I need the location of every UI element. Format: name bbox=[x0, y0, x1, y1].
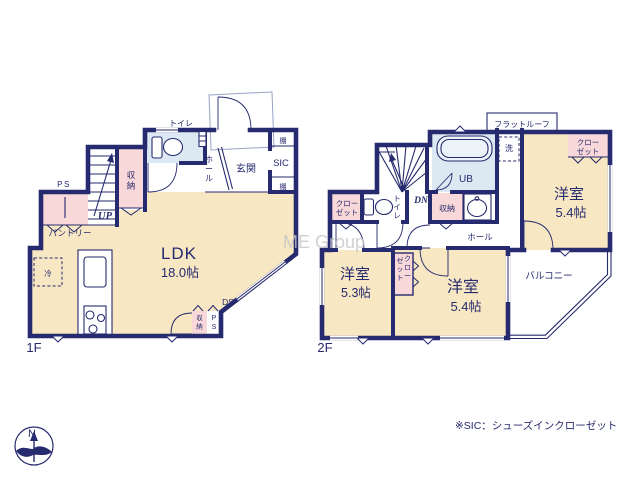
west-left-name-label: 洋室 bbox=[340, 266, 370, 283]
shelf-bottom-label: 棚 bbox=[280, 182, 287, 191]
door-arc-toilet-2f bbox=[377, 222, 403, 248]
door-arc-stairs-2f bbox=[407, 225, 430, 248]
up-label: UP bbox=[98, 211, 113, 222]
closet-tr-label-1: クロー bbox=[577, 138, 600, 147]
flat-roof-label: フラットルーフ bbox=[494, 120, 550, 129]
washer-label: 洗 bbox=[505, 143, 513, 153]
stairs-2f-fan bbox=[377, 145, 427, 192]
vent-mark bbox=[357, 338, 369, 344]
ldk-name-label: LDK bbox=[161, 244, 197, 263]
kitchen-stove-icon bbox=[84, 306, 106, 334]
sic-label: SIC bbox=[273, 158, 289, 169]
hall-label-2f: ホール bbox=[467, 232, 493, 242]
floor-plan-1f: トイレ ホール 玄関 SIC 棚 棚 収納 UP PS パントリー 冷 LDK … bbox=[26, 92, 296, 355]
ldk-size-label: 18.0帖 bbox=[161, 265, 199, 280]
hall-label-1f: ホール bbox=[205, 155, 213, 183]
stairs-1f-arrow bbox=[94, 160, 111, 216]
entrance-label: 玄関 bbox=[236, 162, 256, 175]
west-tr-name-label: 洋室 bbox=[554, 186, 584, 203]
toilet-label-2f: トイレ bbox=[393, 194, 401, 220]
vent-mark bbox=[166, 336, 178, 342]
vent-mark bbox=[52, 336, 64, 342]
vent-mark bbox=[454, 126, 466, 132]
stairs-1f-arrowhead bbox=[107, 153, 114, 163]
compass: N bbox=[15, 427, 53, 465]
west-center-name-label: 洋室 bbox=[447, 278, 479, 296]
balcony-label: バルコニー bbox=[525, 271, 572, 282]
toilet-tank-icon-1f bbox=[152, 137, 162, 158]
ps-top-label: PS bbox=[57, 180, 71, 189]
dn-label: DN bbox=[413, 196, 429, 206]
vent-mark bbox=[422, 338, 434, 344]
kitchen-sink-icon bbox=[84, 257, 106, 287]
ds-label: DS bbox=[222, 297, 234, 307]
storage-2f-label: 収納 bbox=[439, 203, 455, 213]
pantry-label: パントリー bbox=[49, 228, 92, 238]
west-center-size-label: 5.4帖 bbox=[450, 299, 481, 314]
floorplan-canvas: トイレ ホール 玄関 SIC 棚 棚 収納 UP PS パントリー 冷 LDK … bbox=[0, 0, 640, 480]
storage-mid-label: 収納 bbox=[127, 170, 136, 191]
closet-center-label-1: クロー bbox=[404, 255, 411, 280]
door-arc-hall-ldk bbox=[148, 163, 177, 192]
entrance-porch-outline bbox=[209, 92, 274, 150]
closet-tr-label-2: ゼット bbox=[577, 146, 600, 156]
compass-north-label: N bbox=[28, 428, 36, 440]
sic-footnote: ※SIC：シューズインクローゼット bbox=[455, 419, 617, 432]
toilet-bowl-icon-2f bbox=[376, 200, 393, 215]
west-tr-size-label: 5.4帖 bbox=[555, 205, 586, 220]
floor1-label: 1F bbox=[26, 340, 41, 355]
toilet-label-1f: トイレ bbox=[169, 119, 193, 128]
closet-left-label-1: クロー bbox=[336, 199, 359, 208]
west-left-size-label: 5.3帖 bbox=[341, 285, 371, 300]
closet-center-label-2: ゼット bbox=[397, 256, 404, 282]
fridge-label: 冷 bbox=[44, 268, 52, 278]
floor2-label: 2F bbox=[317, 340, 332, 355]
shelf-top-label: 棚 bbox=[280, 136, 287, 145]
window-hall-louver bbox=[199, 132, 206, 147]
watermark: ME Group bbox=[283, 232, 365, 252]
balcony-rail bbox=[508, 252, 611, 339]
toilet-bowl-icon-1f bbox=[164, 139, 183, 156]
stairs-2f-arrowhead bbox=[389, 153, 396, 162]
bath-ub-label: UB bbox=[459, 174, 473, 185]
closet-left-label-2: ゼット bbox=[336, 207, 359, 217]
vent-mark bbox=[559, 250, 571, 256]
toilet-tank-icon-2f bbox=[364, 199, 374, 215]
